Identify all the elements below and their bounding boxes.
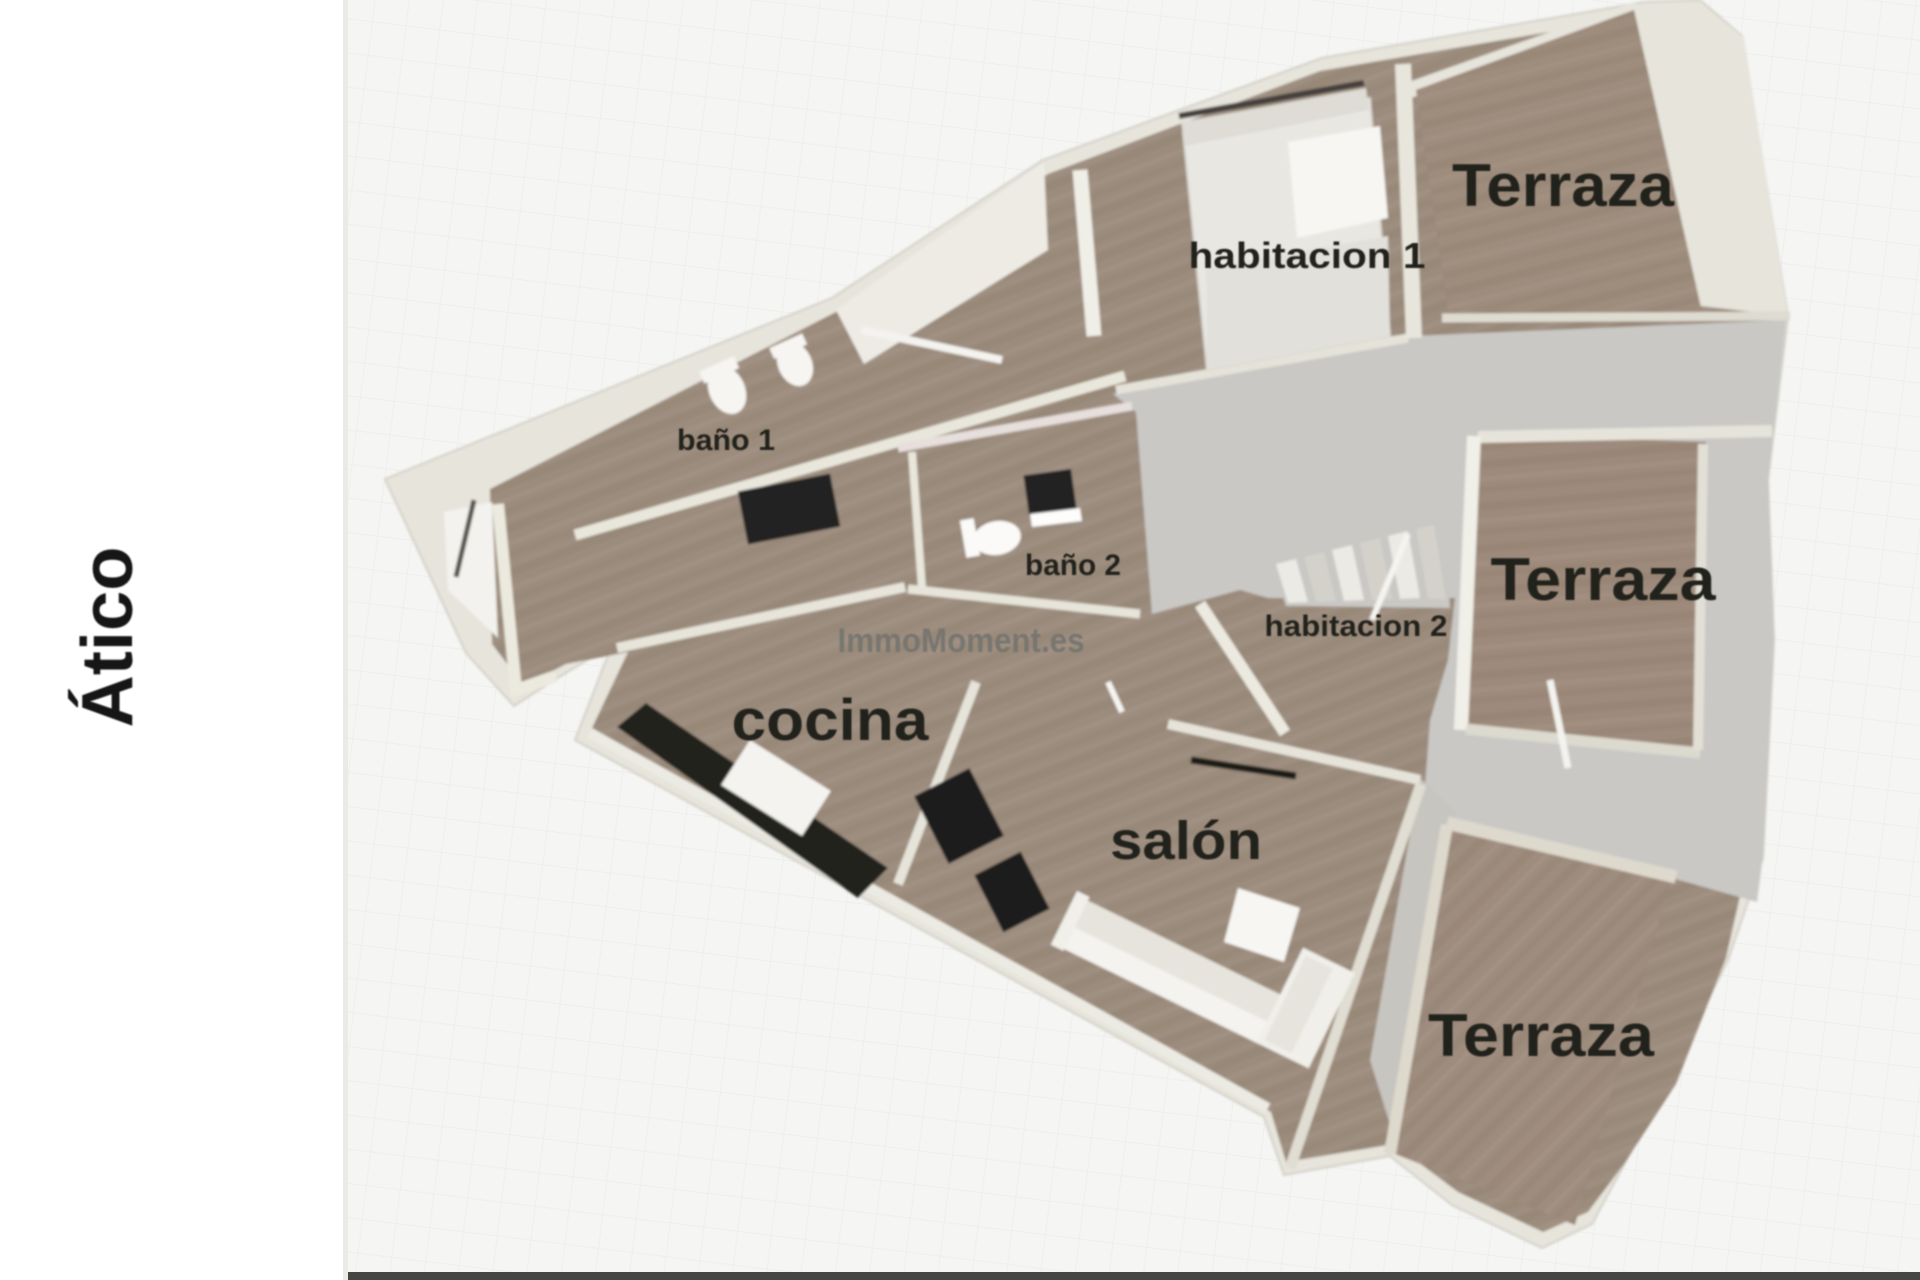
svg-text:baño 2: baño 2 (1025, 549, 1121, 582)
svg-text:baño 1: baño 1 (677, 424, 775, 457)
svg-text:Ático: Ático (68, 547, 148, 728)
svg-text:ImmoMoment.es: ImmoMoment.es (838, 622, 1085, 660)
svg-text:Terraza: Terraza (1491, 546, 1717, 613)
svg-text:Terraza: Terraza (1452, 152, 1675, 219)
svg-text:Terraza: Terraza (1428, 1002, 1655, 1069)
svg-text:salón: salón (1110, 811, 1262, 871)
svg-text:habitacion 1: habitacion 1 (1189, 235, 1426, 276)
svg-text:cocina: cocina (732, 688, 930, 753)
svg-text:habitacion 2: habitacion 2 (1265, 610, 1448, 643)
